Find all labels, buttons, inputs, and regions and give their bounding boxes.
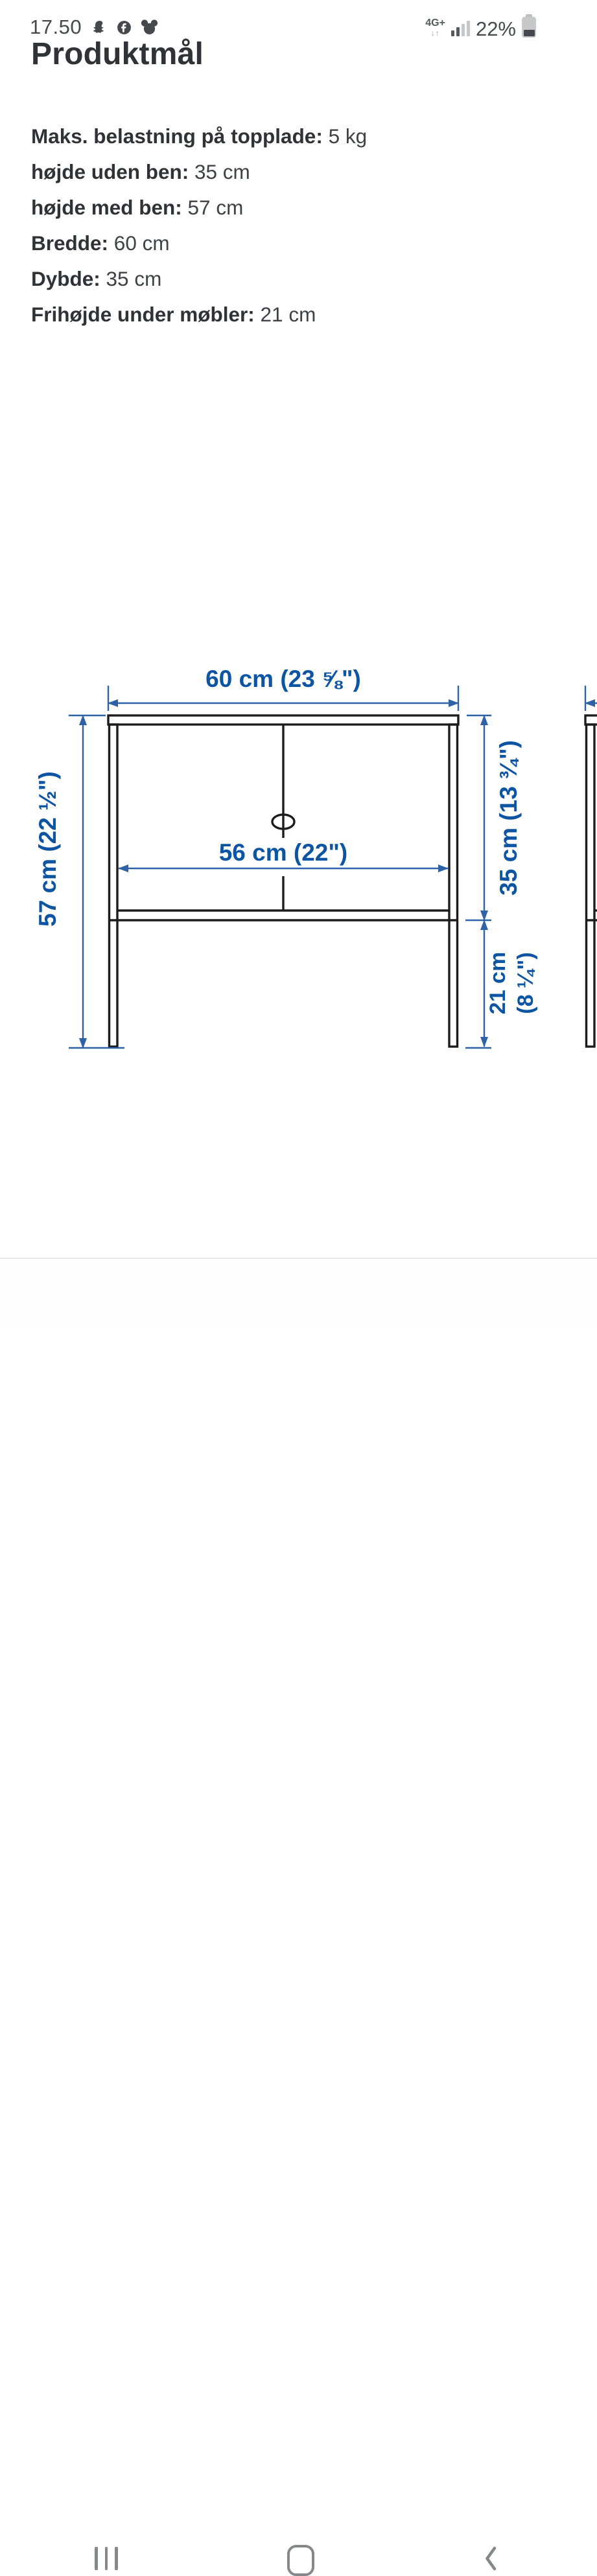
- disney-mickey-icon: [141, 19, 158, 35]
- spec-value: 35 cm: [194, 160, 250, 183]
- clearance-dimension-label-line2: (8 ¼"): [513, 952, 538, 1014]
- spec-value: 5 kg: [329, 124, 368, 148]
- product-dimensions-list: Maks. belastning på topplade: 5 kg højde…: [31, 119, 367, 332]
- spec-value: 60 cm: [114, 231, 170, 255]
- spec-label: Frihøjde under møbler:: [31, 303, 255, 326]
- partial-top-plate: [585, 715, 597, 725]
- network-type-label: 4G+: [425, 18, 445, 29]
- signal-strength-icon: [451, 21, 470, 36]
- status-right-cluster: 4G+ ↓↑ 22%: [425, 14, 536, 39]
- body-height-dimension-label: 35 cm (13 ¾"): [495, 740, 522, 896]
- spec-label: Dybde:: [31, 267, 100, 290]
- clock: 17.50: [30, 16, 82, 39]
- spec-row-width: Bredde: 60 cm: [31, 226, 367, 261]
- total-height-dimension-label: 57 cm (22 ½"): [34, 771, 61, 927]
- spec-row-max-load: Maks. belastning på topplade: 5 kg: [31, 119, 367, 154]
- status-left-cluster: 17.50: [30, 16, 158, 39]
- data-arrows-icon: ↓↑: [431, 29, 440, 37]
- battery-icon: [522, 14, 536, 38]
- back-chevron-icon: [487, 2548, 495, 2569]
- width-dimension-label: 60 cm (23 ⅝"): [205, 666, 361, 692]
- spec-row-clearance: Frihøjde under møbler: 21 cm: [31, 297, 367, 332]
- spec-value: 35 cm: [106, 267, 162, 290]
- spec-label: Maks. belastning på topplade:: [31, 124, 323, 148]
- spec-label: Bredde:: [31, 231, 108, 255]
- spec-value: 21 cm: [261, 303, 316, 326]
- inner-width-dimension-label: 56 cm (22"): [219, 839, 348, 866]
- recents-button[interactable]: [95, 2547, 118, 2570]
- spec-row-height-without-legs: højde uden ben: 35 cm: [31, 154, 367, 190]
- back-button[interactable]: [485, 2546, 497, 2571]
- left-leg: [110, 725, 118, 1047]
- page-title: Produktmål: [31, 36, 204, 72]
- notification-icons: [91, 19, 158, 36]
- spec-value: 57 cm: [188, 196, 244, 219]
- clearance-dimension-label-line1: 21 cm: [486, 952, 510, 1014]
- spec-row-height-with-legs: højde med ben: 57 cm: [31, 190, 367, 226]
- spec-row-depth: Dybde: 35 cm: [31, 261, 367, 297]
- partial-leg: [587, 725, 595, 1047]
- battery-percent: 22%: [476, 17, 516, 41]
- dimension-diagram: 60 cm (23 ⅝") 56 cm (22") 57 cm (22 ½") …: [0, 648, 597, 1102]
- right-leg: [449, 725, 458, 1047]
- spec-label: højde uden ben:: [31, 160, 189, 183]
- recents-icon: [95, 2547, 98, 2570]
- facebook-icon: [116, 19, 132, 36]
- navigation-bar: [0, 1259, 597, 1327]
- spec-label: højde med ben:: [31, 196, 182, 219]
- snapchat-icon: [91, 19, 108, 36]
- screen: { "status_bar": { "time": "17.50", "noti…: [0, 0, 597, 1327]
- network-indicator: 4G+ ↓↑: [425, 18, 445, 37]
- top-plate: [108, 715, 458, 725]
- home-button[interactable]: [287, 2545, 314, 2576]
